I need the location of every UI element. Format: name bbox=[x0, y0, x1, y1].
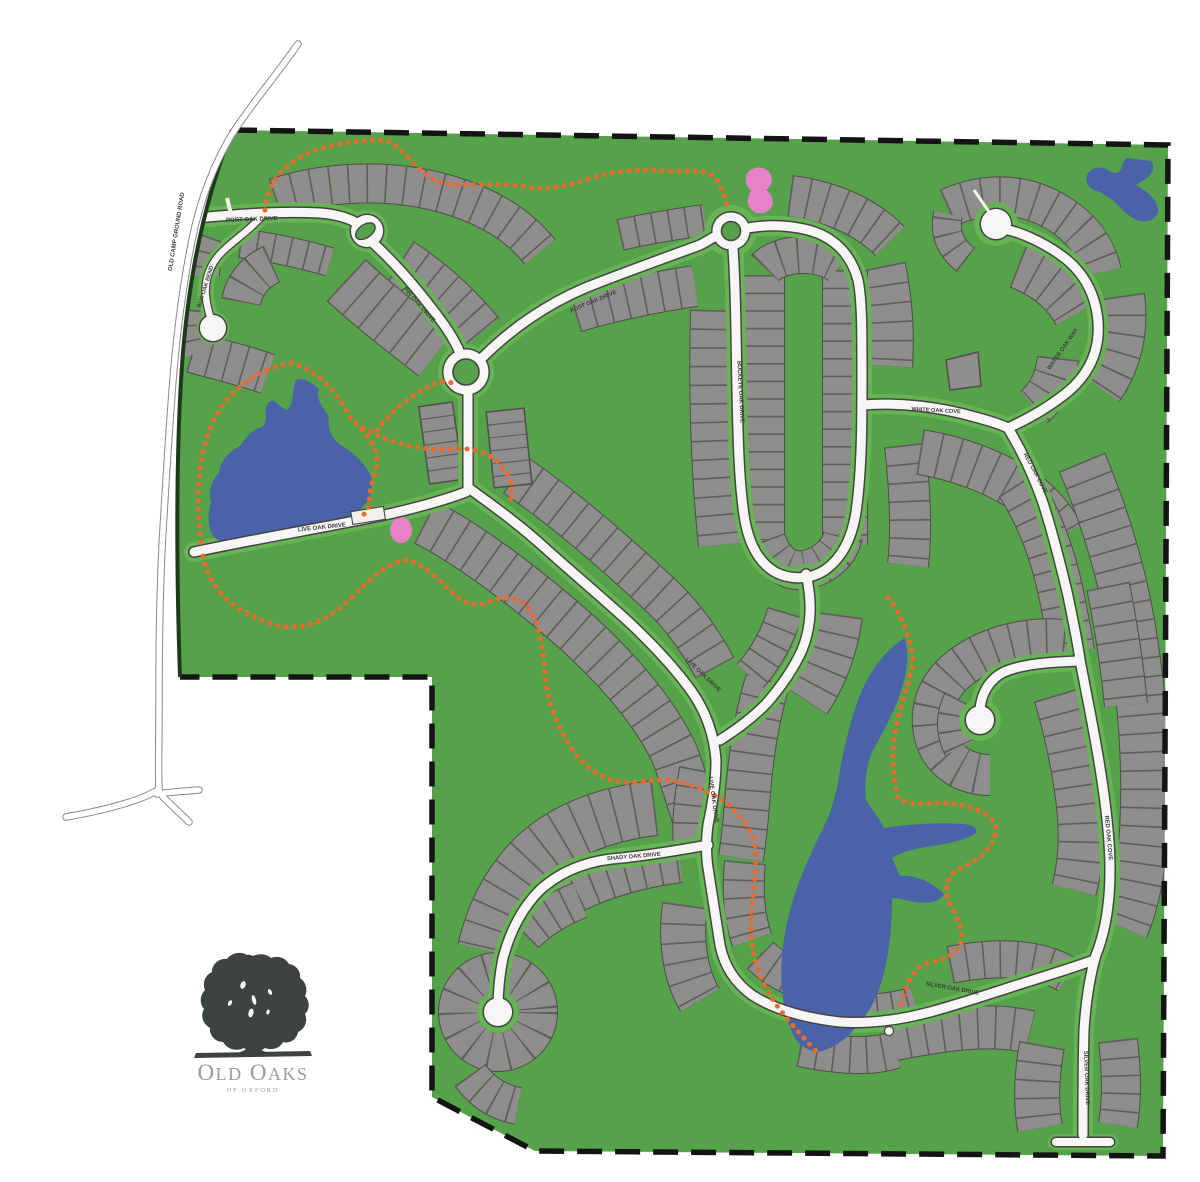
svg-text:OF OXFORD: OF OXFORD bbox=[227, 1087, 280, 1094]
svg-text:OLD OAKS: OLD OAKS bbox=[197, 1060, 308, 1085]
